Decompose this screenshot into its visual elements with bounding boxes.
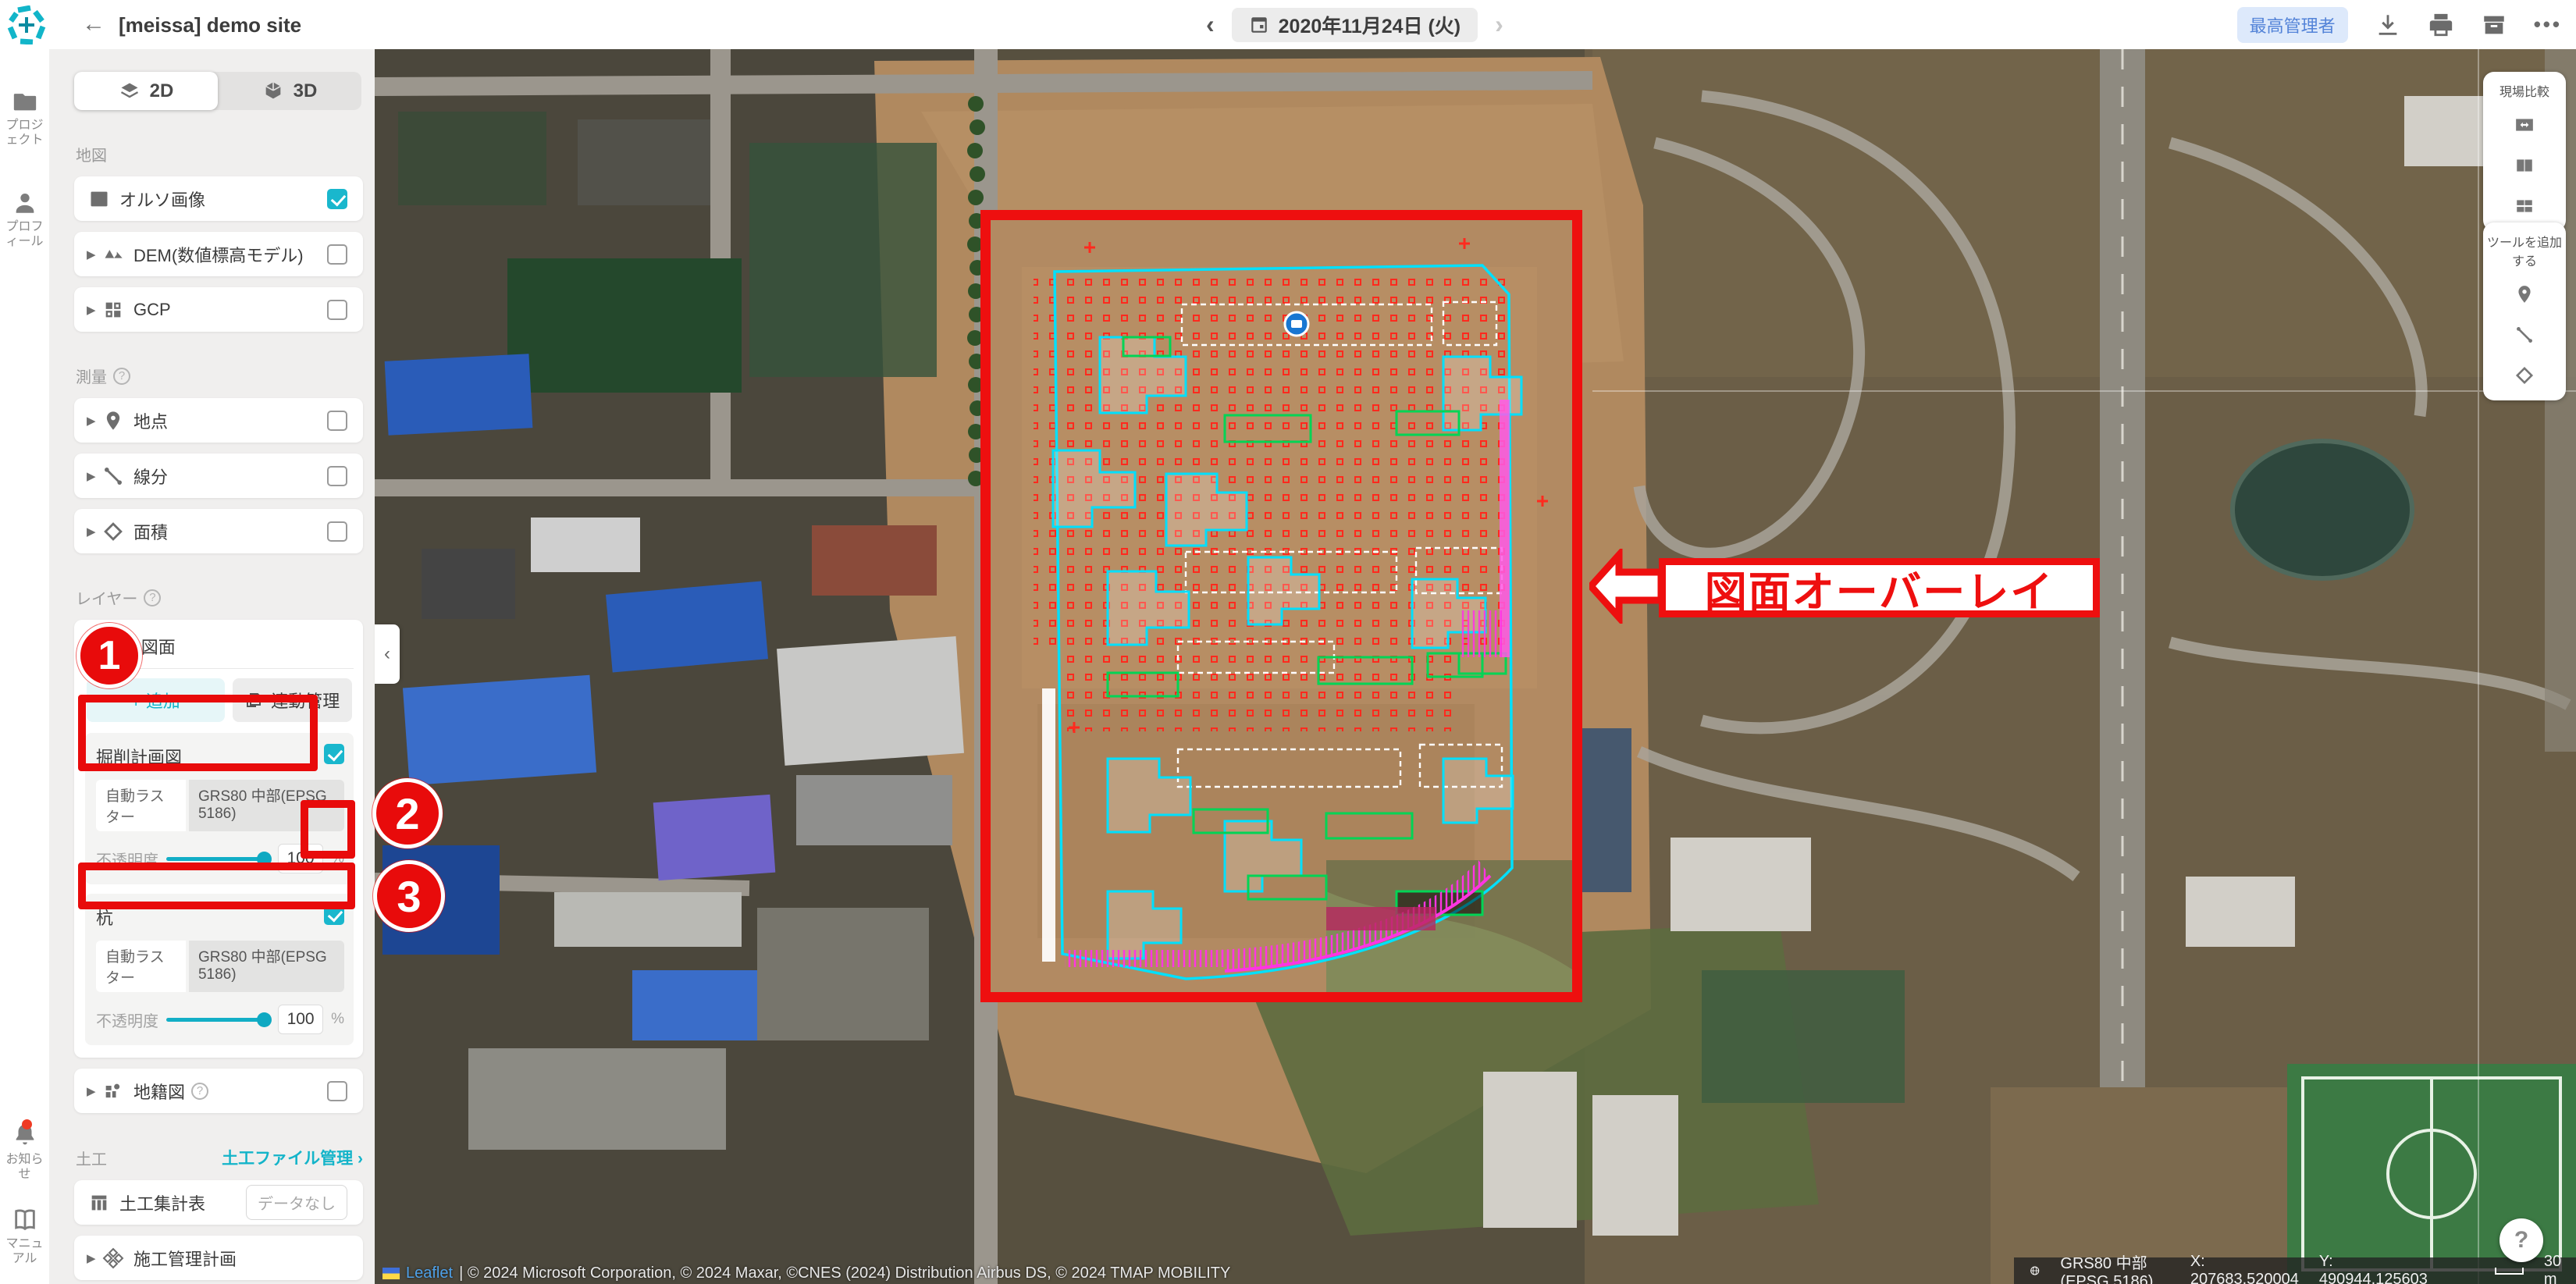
coord-x: X: 207683.520004 bbox=[2190, 1253, 2299, 1284]
area-diamond-icon bbox=[2514, 365, 2535, 386]
layer-row-cadastral[interactable]: ▶ 地籍図? bbox=[74, 1069, 363, 1113]
segment-checkbox[interactable] bbox=[327, 466, 347, 486]
prev-date-button[interactable]: ‹ bbox=[1206, 10, 1215, 39]
drawing-layer-pile: 杭 自動ラスター GRS80 中部(EPSG 5186) 不透明度 100 % bbox=[85, 894, 354, 1045]
add-tools-title: ツールを追加する bbox=[2483, 232, 2566, 269]
crs-chip: GRS80 中部(EPSG 5186) bbox=[189, 941, 344, 992]
cadastral-icon bbox=[102, 1080, 124, 1102]
crs-label: GRS80 中部(EPSG 5186) bbox=[2060, 1250, 2169, 1284]
callout-number-3: 3 bbox=[373, 860, 445, 932]
earthwork-file-manage-link[interactable]: 土工ファイル管理 › bbox=[222, 1146, 363, 1169]
layer-row-ortho[interactable]: オルソ画像 bbox=[74, 176, 363, 221]
opacity-value-input[interactable]: 100 bbox=[278, 1005, 323, 1034]
expand-arrow-icon[interactable]: ▶ bbox=[87, 247, 101, 261]
date-navigation: ‹ 2020年11月24日 (火) › bbox=[1206, 0, 1503, 49]
cad-overlay-plan bbox=[991, 220, 1572, 992]
notification-badge bbox=[22, 1119, 32, 1129]
area-diamond-icon bbox=[102, 521, 124, 542]
callout-number-1: 1 bbox=[76, 623, 142, 688]
cube-icon bbox=[262, 80, 284, 102]
scale-bar bbox=[2495, 1268, 2524, 1275]
back-button[interactable]: ← bbox=[82, 11, 105, 37]
earthwork-item-label: 施工管理計画 bbox=[133, 1246, 347, 1271]
coord-y: Y: 490944.125603 bbox=[2319, 1253, 2428, 1284]
section-layer: レイヤー? bbox=[76, 586, 363, 609]
attribution-credits: | © 2024 Microsoft Corporation, © 2024 M… bbox=[459, 1264, 1230, 1282]
earthwork-label: 土工 bbox=[76, 1147, 222, 1169]
site-compare-panel: 現場比較 bbox=[2483, 72, 2566, 231]
layer-label: GCP bbox=[133, 300, 327, 320]
expand-arrow-icon[interactable]: ▶ bbox=[87, 1084, 101, 1098]
survey-label: 面積 bbox=[133, 519, 327, 544]
annotation-box-excavation-layer bbox=[78, 695, 318, 771]
help-icon[interactable]: ? bbox=[191, 1083, 208, 1100]
globe-icon bbox=[2030, 1262, 2040, 1279]
rail-item-label: プロフィール bbox=[0, 220, 49, 249]
help-icon[interactable]: ? bbox=[113, 368, 130, 385]
rail-item-projects[interactable]: プロジェクト bbox=[0, 88, 49, 148]
add-area-tool-button[interactable] bbox=[2483, 355, 2566, 396]
opacity-label: 不透明度 bbox=[96, 1008, 158, 1031]
section-earthwork: 土工 土工ファイル管理 › bbox=[76, 1146, 363, 1169]
line-segment-icon bbox=[2514, 325, 2535, 345]
drawing-overlay-annotation-frame bbox=[980, 210, 1582, 1002]
excavation-checkbox[interactable] bbox=[324, 744, 344, 764]
opacity-row: 不透明度 100 % bbox=[96, 1005, 344, 1034]
diamond-grid-icon bbox=[102, 1247, 124, 1269]
table-icon bbox=[88, 1192, 110, 1214]
opacity-slider[interactable] bbox=[166, 1018, 270, 1022]
earthwork-item-label: 土工集計表 bbox=[119, 1190, 246, 1215]
pin-icon bbox=[102, 410, 124, 432]
rail-item-notifications[interactable]: お知らせ bbox=[0, 1122, 49, 1182]
folder-icon bbox=[12, 88, 38, 115]
date-picker-button[interactable]: 2020年11月24日 (火) bbox=[1232, 8, 1478, 42]
cadastral-checkbox[interactable] bbox=[327, 1081, 347, 1101]
swipe-compare-icon bbox=[2514, 115, 2535, 135]
survey-row-segment[interactable]: ▶ 線分 bbox=[74, 453, 363, 498]
survey-label: 線分 bbox=[133, 464, 327, 489]
annotation-box-pile-opacity bbox=[78, 863, 355, 909]
scale-label: 30 m bbox=[2544, 1253, 2565, 1284]
leaflet-link[interactable]: Leaflet bbox=[406, 1264, 453, 1282]
split-2-icon bbox=[2514, 155, 2535, 176]
rail-item-label: お知らせ bbox=[0, 1153, 49, 1182]
download-icon[interactable] bbox=[2375, 12, 2401, 38]
earthwork-row-management-plan[interactable]: ▶ 施工管理計画 bbox=[74, 1236, 363, 1280]
opacity-slider[interactable] bbox=[166, 857, 270, 861]
topbar: ← [meissa] demo site ‹ 2020年11月24日 (火) ›… bbox=[0, 0, 2576, 49]
add-point-tool-button[interactable] bbox=[2483, 274, 2566, 315]
survey-label: 地点 bbox=[133, 408, 327, 433]
book-icon bbox=[12, 1207, 38, 1233]
drawing-overlay-annotation-label: 図面オーバーレイ bbox=[1659, 558, 2100, 617]
layers-icon bbox=[119, 80, 141, 102]
gcp-grid-icon bbox=[102, 299, 124, 321]
point-checkbox[interactable] bbox=[327, 411, 347, 431]
split-4-button[interactable] bbox=[2483, 186, 2566, 226]
dem-checkbox[interactable] bbox=[327, 244, 347, 265]
view-mode-toggle: 2D 3D bbox=[74, 72, 361, 110]
annotation-arrow-icon bbox=[1589, 549, 1661, 624]
add-line-tool-button[interactable] bbox=[2483, 315, 2566, 355]
toggle-3d-label: 3D bbox=[294, 80, 318, 102]
raster-type-chip: 自動ラスター bbox=[96, 941, 186, 992]
rail-item-label: マニュアル bbox=[0, 1237, 49, 1266]
rail-item-profile[interactable]: プロフィール bbox=[0, 190, 49, 249]
toggle-3d-button[interactable]: 3D bbox=[218, 72, 361, 110]
sidebar-collapse-button[interactable]: ‹ bbox=[375, 624, 400, 684]
map-canvas[interactable]: 図面オーバーレイ 現場比較 ツールを追加する bbox=[375, 49, 2576, 1284]
section-survey: 測量? bbox=[76, 365, 363, 387]
site-title: [meissa] demo site bbox=[119, 13, 301, 37]
help-icon[interactable]: ? bbox=[144, 589, 161, 606]
split-2-button[interactable] bbox=[2483, 145, 2566, 186]
toggle-2d-button[interactable]: 2D bbox=[74, 72, 218, 110]
survey-row-point[interactable]: ▶ 地点 bbox=[74, 398, 363, 443]
site-compare-title: 現場比較 bbox=[2483, 81, 2566, 100]
layer-label: 地籍図? bbox=[133, 1079, 327, 1104]
layer-label: DEM(数値標高モデル) bbox=[133, 242, 327, 267]
date-label: 2020年11月24日 (火) bbox=[1279, 11, 1461, 39]
layer-row-gcp[interactable]: ▶ GCP bbox=[74, 287, 363, 332]
gcp-checkbox[interactable] bbox=[327, 300, 347, 320]
mountains-icon bbox=[102, 244, 124, 265]
line-segment-icon bbox=[102, 465, 124, 487]
raster-type-chip: 自動ラスター bbox=[96, 780, 186, 831]
layer-label: オルソ画像 bbox=[119, 187, 327, 212]
area-checkbox[interactable] bbox=[327, 521, 347, 542]
survey-row-area[interactable]: ▶ 面積 bbox=[74, 509, 363, 553]
left-rail: プロジェクト プロフィール お知らせ マニュアル bbox=[0, 49, 49, 1284]
slider-knob[interactable] bbox=[257, 1012, 272, 1027]
annotation-box-pile-checkbox bbox=[301, 800, 355, 859]
pin-icon bbox=[2514, 284, 2535, 304]
raster-chips: 自動ラスター GRS80 中部(EPSG 5186) bbox=[96, 941, 344, 992]
no-data-badge: データなし bbox=[246, 1185, 347, 1220]
split-4-icon bbox=[2514, 196, 2535, 216]
layer-row-dem[interactable]: ▶ DEM(数値標高モデル) bbox=[74, 232, 363, 276]
more-menu-icon[interactable]: ••• bbox=[2534, 12, 2562, 37]
image-icon bbox=[88, 188, 110, 210]
expand-arrow-icon[interactable]: ▶ bbox=[87, 525, 101, 539]
print-icon[interactable] bbox=[2428, 12, 2454, 38]
topbar-actions: 最高管理者 ••• bbox=[2237, 0, 2562, 49]
swipe-compare-button[interactable] bbox=[2483, 105, 2566, 145]
next-date-button[interactable]: › bbox=[1495, 10, 1503, 39]
meissa-logo-icon[interactable] bbox=[7, 5, 46, 44]
ukraine-flag-icon bbox=[382, 1268, 400, 1279]
expand-arrow-icon[interactable]: ▶ bbox=[87, 469, 101, 483]
meissa-app: ← [meissa] demo site ‹ 2020年11月24日 (火) ›… bbox=[0, 0, 2576, 1284]
drawing-group-title: 図面 bbox=[141, 634, 176, 659]
calendar-icon bbox=[1249, 15, 1269, 35]
archive-icon[interactable] bbox=[2481, 12, 2507, 38]
add-tools-panel: ツールを追加する bbox=[2483, 222, 2566, 400]
help-button[interactable]: ? bbox=[2500, 1218, 2543, 1262]
earthwork-row-summary[interactable]: 土工集計表 データなし bbox=[74, 1180, 363, 1225]
section-map: 地図 bbox=[76, 143, 363, 165]
opacity-unit: % bbox=[331, 1011, 344, 1028]
expand-arrow-icon[interactable]: ▶ bbox=[87, 1251, 101, 1265]
person-icon bbox=[12, 190, 38, 216]
map-statusbar: GRS80 中部(EPSG 5186) X: 207683.520004 Y: … bbox=[2014, 1257, 2576, 1284]
callout-number-2: 2 bbox=[372, 778, 443, 848]
expand-arrow-icon[interactable]: ▶ bbox=[87, 414, 101, 428]
expand-arrow-icon[interactable]: ▶ bbox=[87, 303, 101, 317]
rail-item-label: プロジェクト bbox=[0, 119, 49, 148]
role-badge: 最高管理者 bbox=[2237, 7, 2348, 43]
rail-item-manual[interactable]: マニュアル bbox=[0, 1207, 49, 1266]
ortho-checkbox[interactable] bbox=[327, 189, 347, 209]
toggle-2d-label: 2D bbox=[150, 80, 174, 102]
map-attribution: Leaflet | © 2024 Microsoft Corporation, … bbox=[382, 1264, 1230, 1282]
